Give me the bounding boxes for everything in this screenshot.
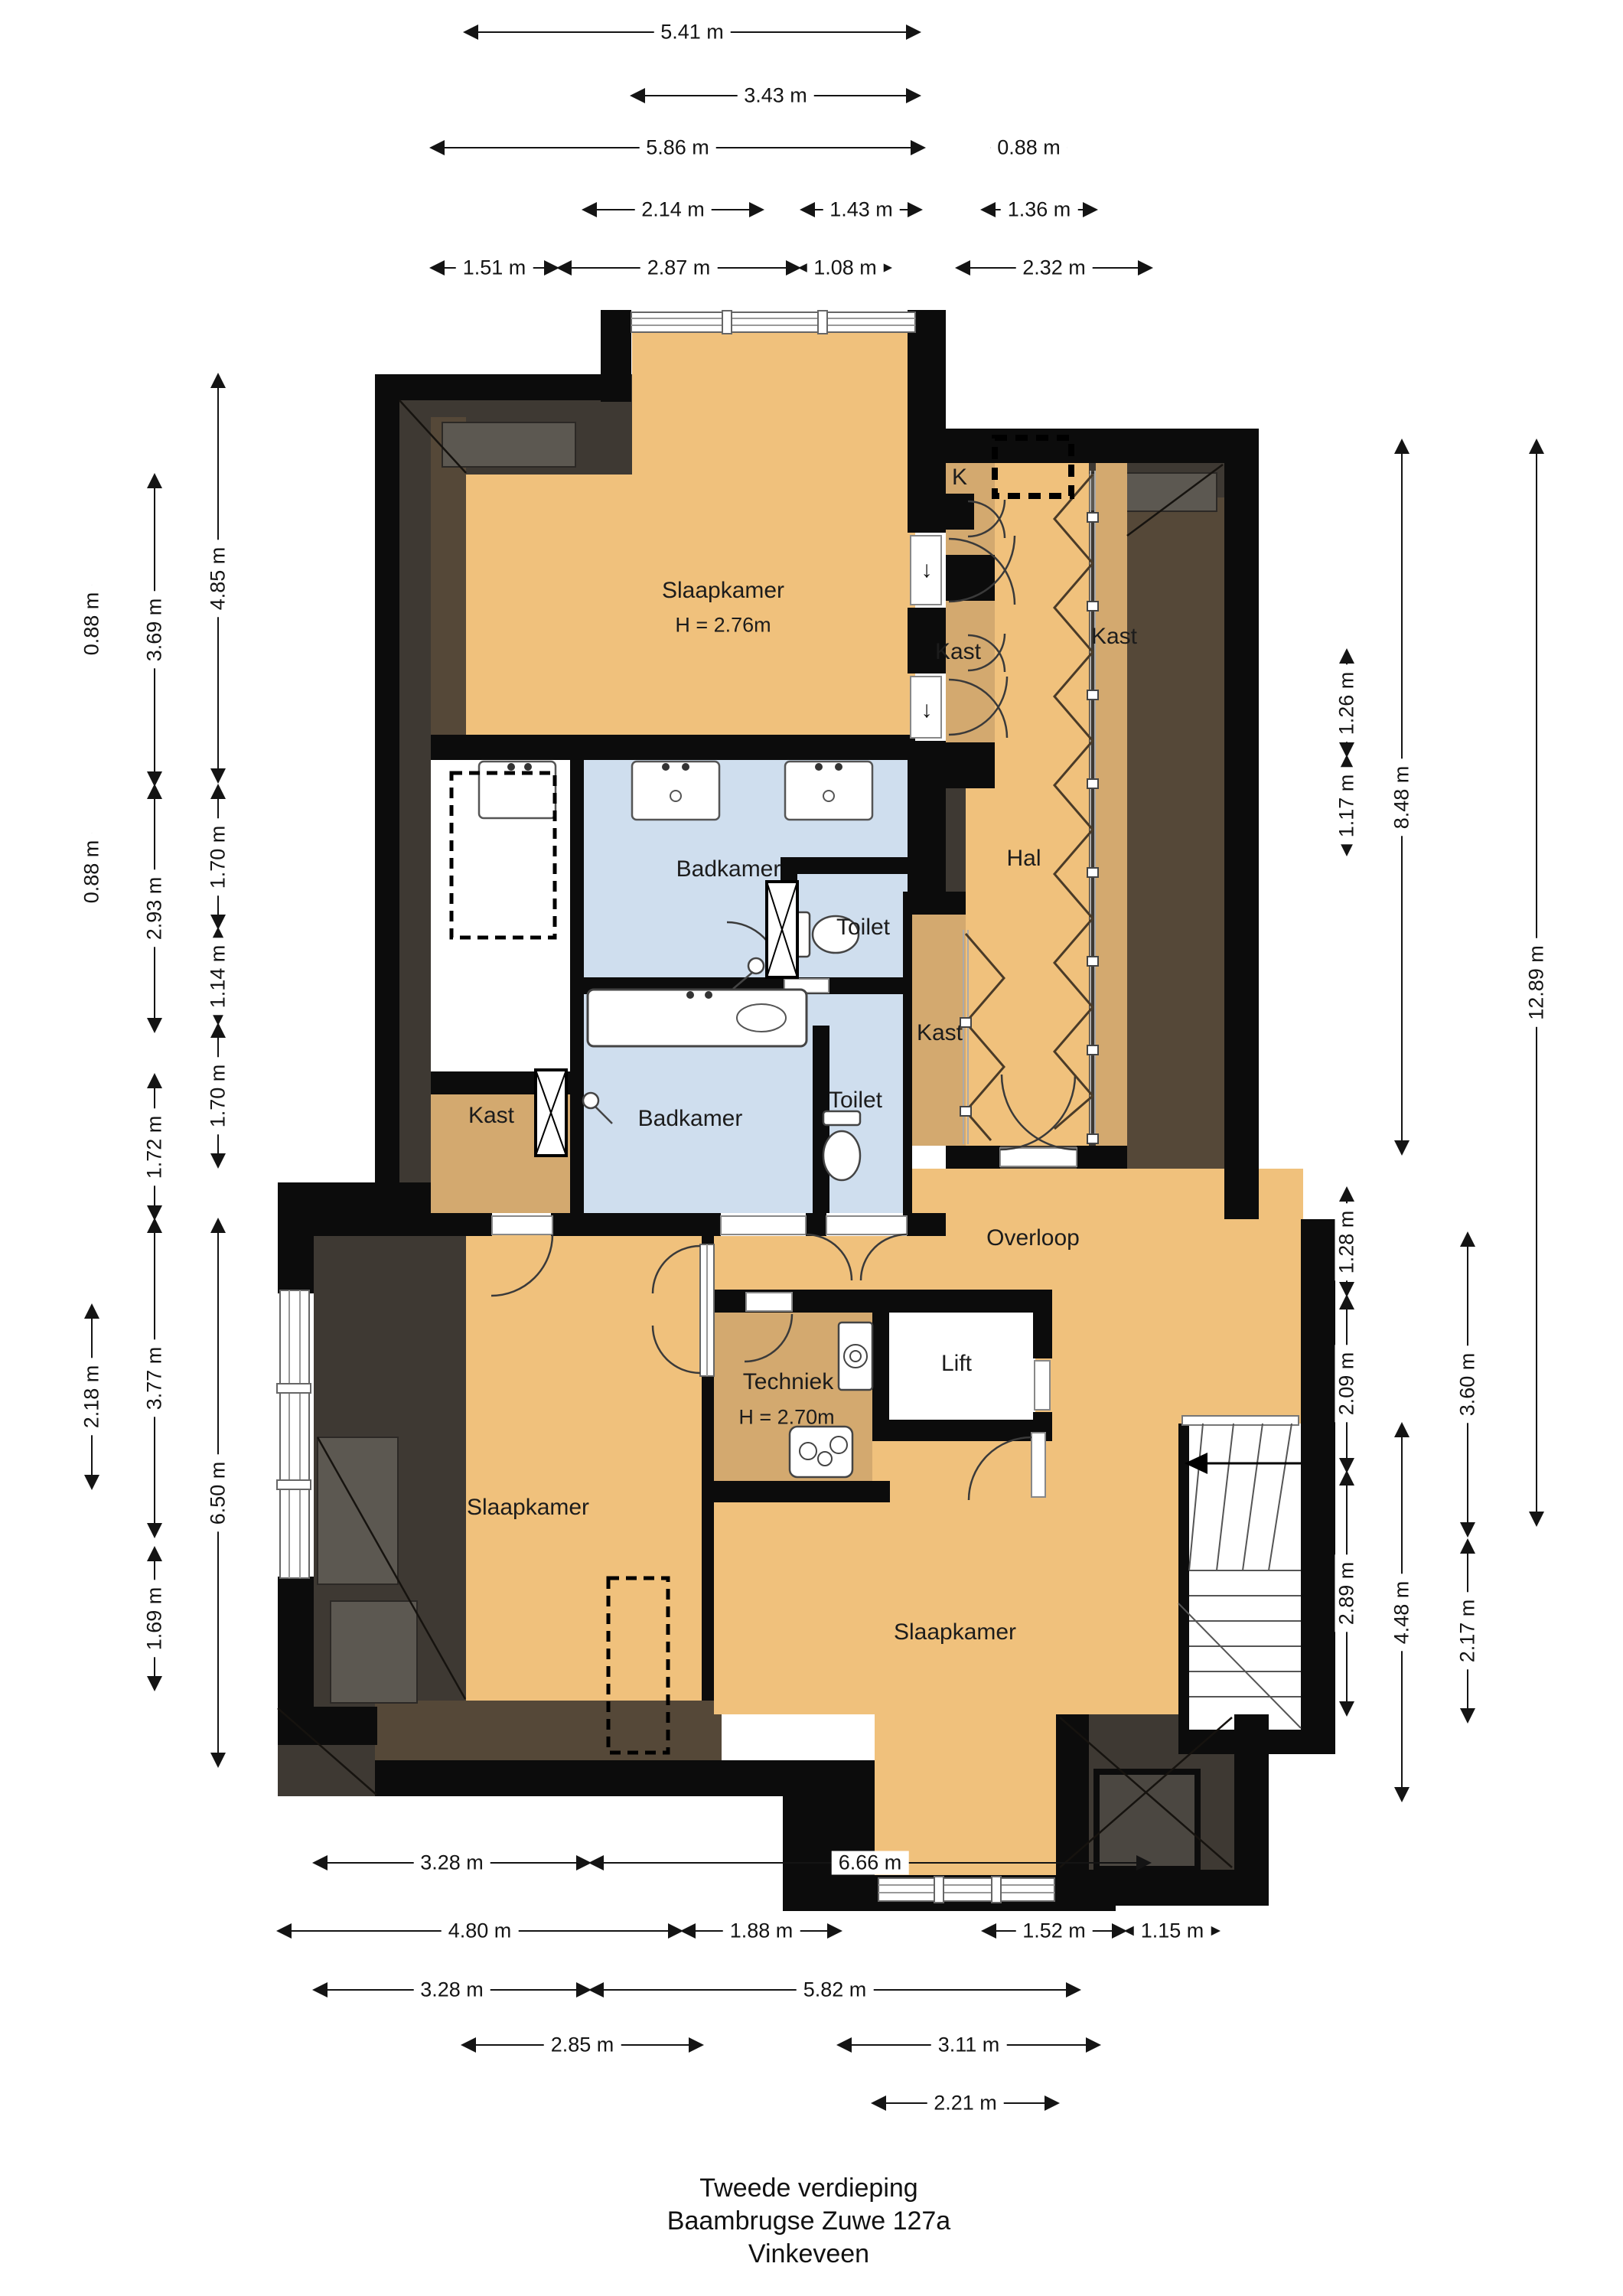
floorplan-page: 5.41 m3.43 m5.86 m0.88 m2.14 m1.43 m1.36… (0, 0, 1623, 2296)
plan-title: Tweede verdieping Baambrugse Zuwe 127a V… (667, 2172, 950, 2271)
floorplan-drawing (0, 0, 1623, 2296)
title-floor: Tweede verdieping (667, 2172, 950, 2205)
title-city: Vinkeveen (667, 2238, 950, 2271)
title-address: Baambrugse Zuwe 127a (667, 2205, 950, 2238)
